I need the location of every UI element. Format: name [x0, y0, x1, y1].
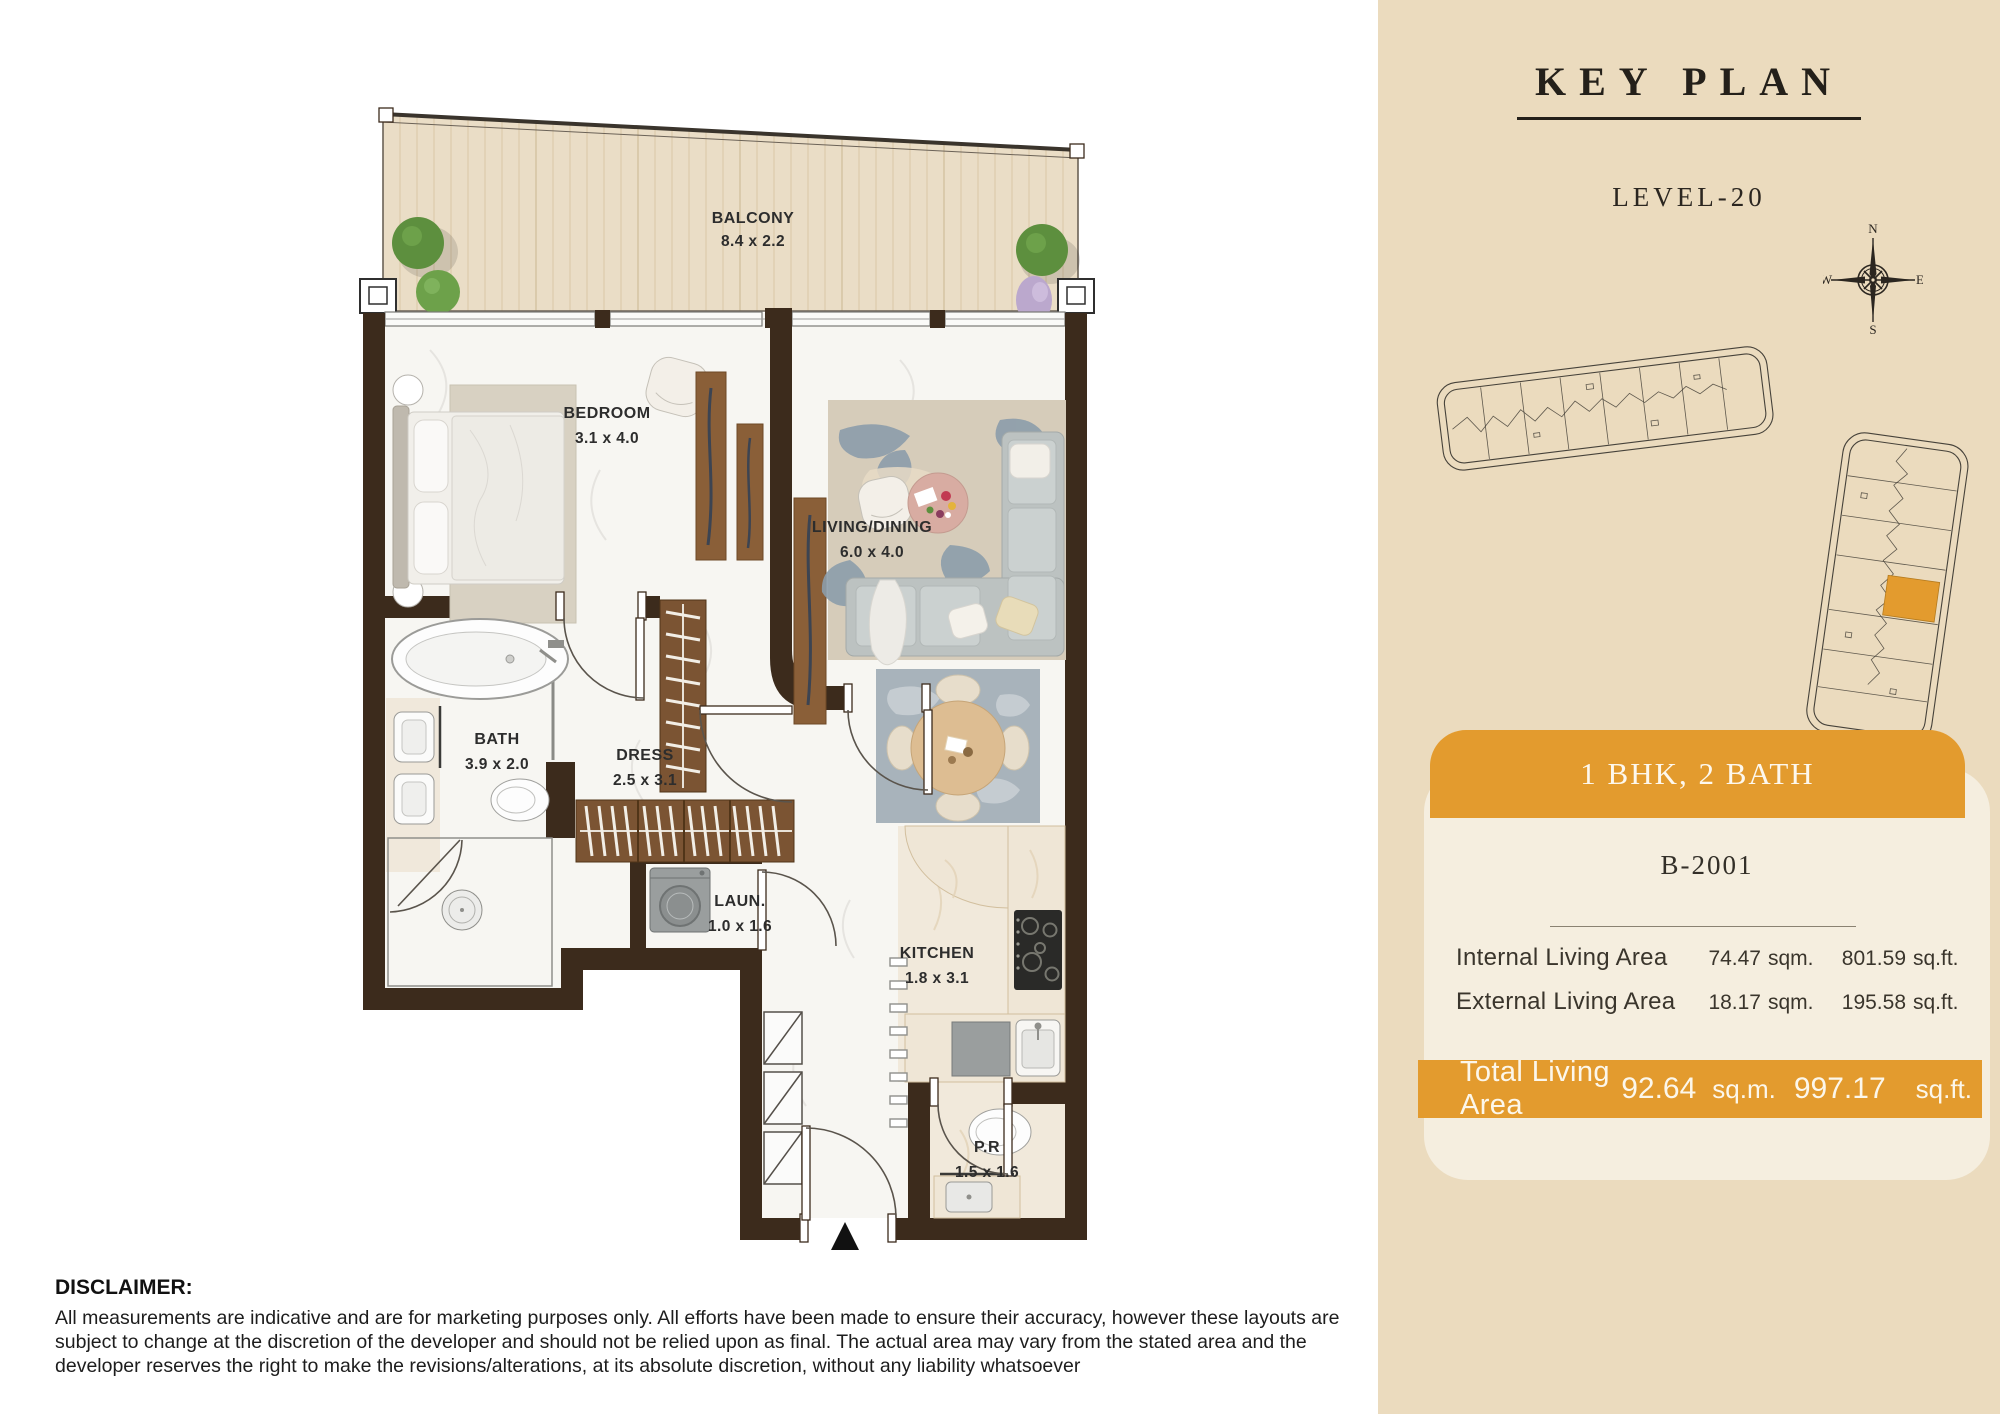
door-leaf [924, 710, 932, 794]
room-label-laundry: LAUN. [714, 893, 765, 910]
pillow [414, 502, 448, 574]
bed-headboard [393, 406, 409, 588]
total-sqft-value: 997.17 [1794, 1072, 1886, 1106]
kitchen-sink [1016, 1020, 1060, 1076]
floor-plan: BALCONY 8.4 x 2.2 BEDROOM 3.1 x 4.0 LIVI… [0, 0, 1378, 1414]
tub-faucet [548, 640, 564, 648]
area-rows: Internal Living Area 74.47 sqm. 801.59 s… [1456, 944, 1964, 1032]
svg-text:6.0 x 4.0: 6.0 x 4.0 [840, 544, 904, 561]
total-sqft-unit: sq.ft. [1916, 1074, 1972, 1105]
total-label: Total Living Area [1460, 1056, 1621, 1122]
entry-door-leaf [802, 1126, 810, 1220]
compass-e: E [1916, 272, 1923, 287]
area-sqm-value: 18.17 [1706, 991, 1761, 1015]
svg-text:3.9 x 2.0: 3.9 x 2.0 [465, 756, 529, 773]
kitchen-cabinet [952, 1022, 1010, 1076]
keyplan-building-a [1435, 345, 1775, 473]
unit-number: B-2001 [1424, 850, 1990, 881]
toilet [491, 779, 549, 821]
room-label-bedroom: BEDROOM [563, 405, 650, 422]
area-sqft-value: 195.58 [1826, 991, 1906, 1015]
level-label: LEVEL-20 [1378, 182, 2000, 213]
external-area-row: External Living Area 18.17 sqm. 195.58 s… [1456, 988, 1964, 1032]
unit-highlight [1883, 575, 1940, 622]
entry-arrow [831, 1222, 859, 1250]
total-area-bar: Total Living Area 92.64 sq.m. 997.17 sq.… [1418, 1060, 1982, 1118]
area-label: Internal Living Area [1456, 944, 1706, 972]
railing-corner-bracket [1070, 144, 1084, 158]
pillow [1010, 444, 1050, 478]
svg-text:1.0 x 1.6: 1.0 x 1.6 [708, 918, 772, 935]
compass-w: W [1823, 272, 1833, 287]
room-label-balcony: BALCONY [712, 210, 795, 227]
room-label-dress: DRESS [616, 747, 674, 764]
compass-icon: N S W E [1823, 222, 1923, 336]
room-label-living-dining: LIVING/DINING [812, 519, 932, 536]
unit-type-badge: 1 BHK, 2 BATH [1430, 730, 1965, 818]
total-sqm-unit: sq.m. [1712, 1074, 1776, 1105]
door-leaf [636, 618, 644, 700]
laundry [650, 868, 710, 932]
compass-n: N [1868, 222, 1878, 236]
bedside-lamp [393, 375, 423, 405]
area-sqft-unit: sq.ft. [1906, 991, 1963, 1015]
disclaimer: DISCLAIMER: All measurements are indicat… [55, 1276, 1375, 1378]
total-sqm-value: 92.64 [1621, 1072, 1696, 1106]
svg-text:3.1 x 4.0: 3.1 x 4.0 [575, 430, 639, 447]
area-sqft-value: 801.59 [1826, 947, 1906, 971]
svg-text:8.4 x 2.2: 8.4 x 2.2 [721, 233, 785, 250]
keyplan-building-b [1804, 430, 1971, 747]
room-label-pr: P.R [974, 1139, 1000, 1156]
keyplan-title: KEY PLAN [1517, 58, 1861, 120]
area-sqm-unit: sqm. [1761, 991, 1826, 1015]
corridor-panels [764, 1012, 802, 1184]
disclaimer-body: All measurements are indicative and are … [55, 1306, 1375, 1378]
unit-number-rule [1550, 926, 1856, 927]
svg-text:2.5 x 3.1: 2.5 x 3.1 [613, 772, 677, 789]
room-label-kitchen: KITCHEN [900, 945, 975, 962]
area-sqft-unit: sq.ft. [1906, 947, 1963, 971]
area-sqm-unit: sqm. [1761, 947, 1826, 971]
railing-corner-bracket [379, 108, 393, 122]
pillow [414, 420, 448, 492]
internal-area-row: Internal Living Area 74.47 sqm. 801.59 s… [1456, 944, 1964, 988]
keyplan-buildings [1378, 330, 2000, 770]
svg-text:1.8 x 3.1: 1.8 x 3.1 [905, 970, 969, 987]
room-label-bath: BATH [474, 731, 519, 748]
duvet [452, 416, 564, 580]
svg-text:1.5 x 1.6: 1.5 x 1.6 [955, 1164, 1019, 1181]
throw-blanket [869, 580, 906, 665]
area-label: External Living Area [1456, 988, 1706, 1016]
door-leaf [758, 870, 766, 950]
door-leaf [700, 706, 792, 714]
area-sqm-value: 74.47 [1706, 947, 1761, 971]
dining-furniture [876, 669, 1040, 823]
keyplan-panel: KEY PLAN LEVEL-20 N S W E [1378, 0, 2000, 1414]
hob [1014, 910, 1062, 990]
disclaimer-heading: DISCLAIMER: [55, 1276, 1375, 1300]
